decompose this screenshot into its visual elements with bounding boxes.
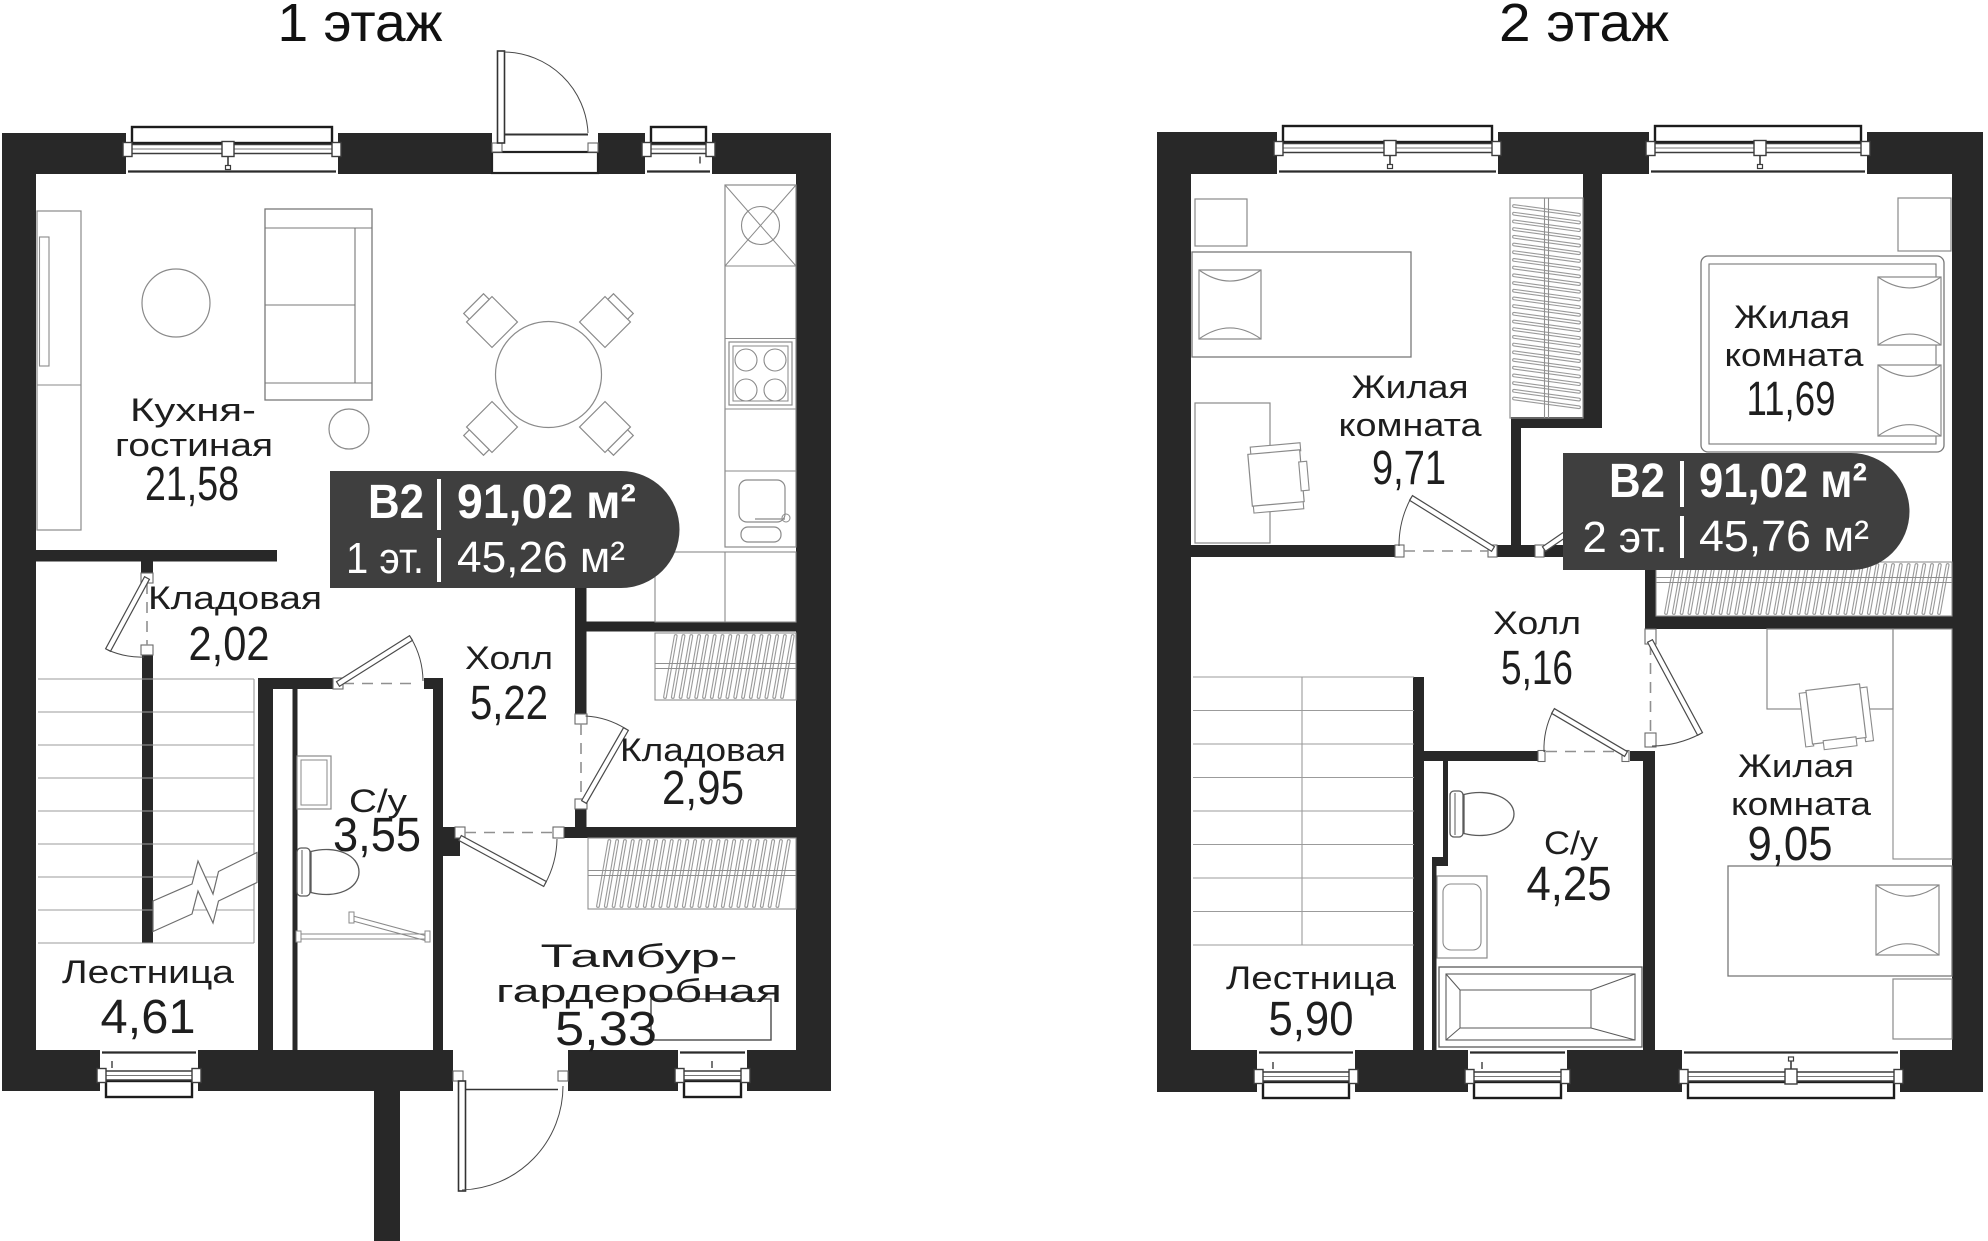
svg-text:5,33: 5,33 — [555, 1003, 657, 1056]
svg-text:5,16: 5,16 — [1501, 642, 1573, 695]
svg-text:С/у: С/у — [1544, 825, 1598, 861]
svg-text:Тамбур-: Тамбур- — [541, 938, 738, 974]
svg-text:комната: комната — [1731, 786, 1871, 822]
svg-text:2 этаж: 2 этаж — [1499, 0, 1669, 53]
svg-text:B2: B2 — [1609, 455, 1665, 508]
svg-text:4,61: 4,61 — [101, 991, 196, 1044]
svg-text:9,05: 9,05 — [1748, 818, 1833, 871]
svg-text:1 эт.: 1 эт. — [346, 534, 424, 583]
svg-text:11,69: 11,69 — [1747, 373, 1836, 426]
svg-text:Лестница: Лестница — [62, 954, 234, 990]
svg-text:Жилая: Жилая — [1734, 299, 1850, 335]
svg-text:Лестница: Лестница — [1226, 960, 1396, 996]
svg-text:Кладовая: Кладовая — [148, 580, 322, 616]
svg-text:B2: B2 — [368, 476, 424, 529]
svg-text:45,76 м²: 45,76 м² — [1699, 512, 1869, 561]
svg-text:4,25: 4,25 — [1527, 858, 1612, 911]
svg-text:91,02 м²: 91,02 м² — [457, 476, 636, 529]
svg-text:1 этаж: 1 этаж — [278, 0, 443, 53]
svg-text:3,55: 3,55 — [333, 809, 421, 862]
svg-text:Кухня-: Кухня- — [130, 392, 256, 428]
svg-text:комната: комната — [1725, 337, 1864, 373]
svg-text:2,02: 2,02 — [189, 618, 270, 671]
svg-text:9,71: 9,71 — [1372, 442, 1446, 495]
svg-text:Жилая: Жилая — [1738, 748, 1854, 784]
svg-text:Жилая: Жилая — [1352, 369, 1469, 405]
svg-text:5,22: 5,22 — [470, 677, 548, 730]
svg-text:2,95: 2,95 — [662, 762, 744, 815]
svg-text:21,58: 21,58 — [145, 458, 239, 511]
svg-text:91,02 м²: 91,02 м² — [1699, 455, 1867, 508]
svg-text:45,26 м²: 45,26 м² — [457, 533, 625, 582]
svg-text:5,90: 5,90 — [1269, 993, 1354, 1046]
svg-text:Холл: Холл — [465, 640, 553, 676]
svg-text:Холл: Холл — [1493, 605, 1581, 641]
svg-text:комната: комната — [1339, 407, 1482, 443]
svg-text:2 эт.: 2 эт. — [1583, 513, 1668, 562]
